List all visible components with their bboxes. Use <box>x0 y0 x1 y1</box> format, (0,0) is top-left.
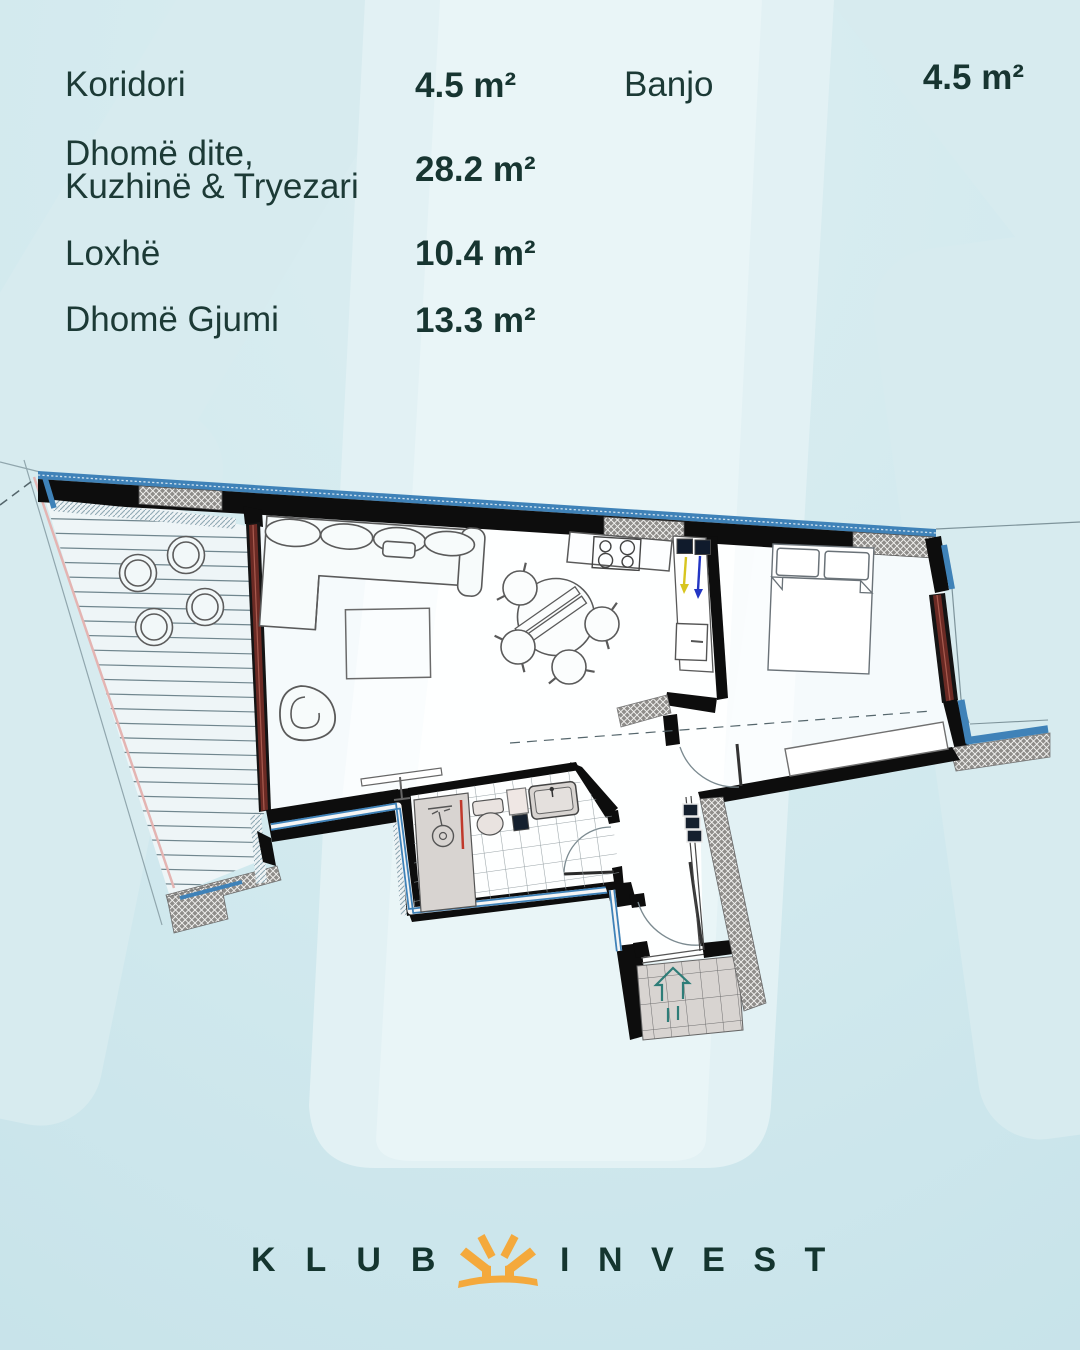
svg-text:KLUB: KLUB <box>251 1241 465 1279</box>
svg-text:INVEST: INVEST <box>560 1241 854 1279</box>
